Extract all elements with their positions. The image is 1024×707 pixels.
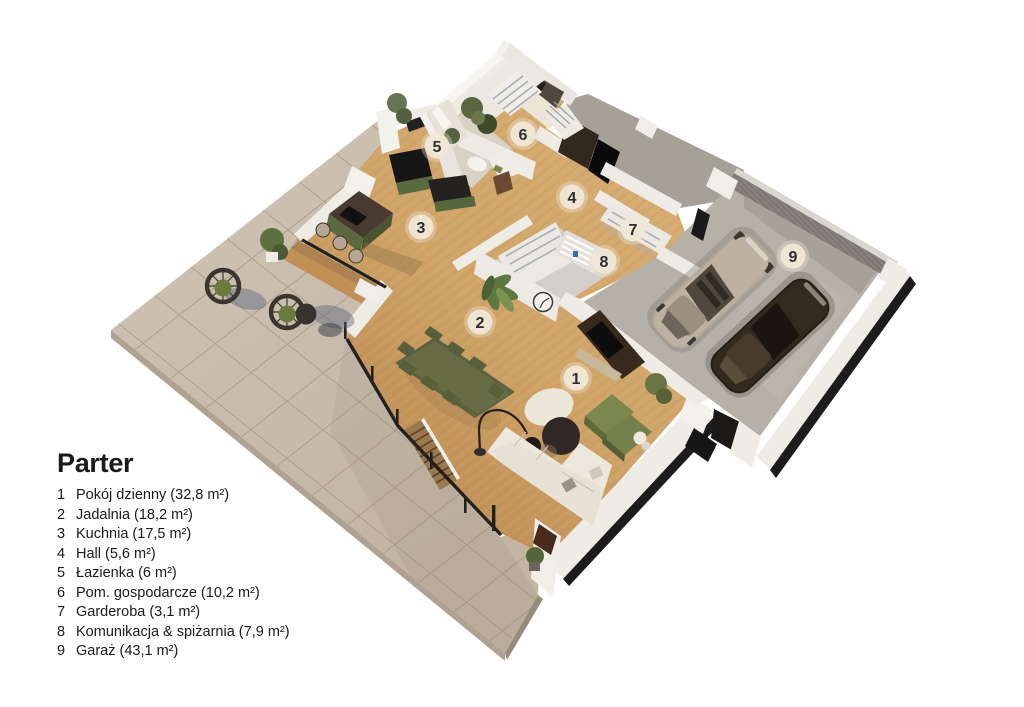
svg-text:8: 8 (600, 254, 609, 271)
svg-text:3: 3 (417, 220, 426, 237)
svg-text:2: 2 (476, 315, 485, 332)
svg-text:1: 1 (572, 371, 581, 388)
svg-text:4: 4 (568, 190, 577, 207)
svg-text:7: 7 (629, 222, 638, 239)
svg-text:6: 6 (519, 127, 528, 144)
svg-text:5: 5 (433, 139, 442, 156)
svg-text:9: 9 (789, 249, 798, 266)
